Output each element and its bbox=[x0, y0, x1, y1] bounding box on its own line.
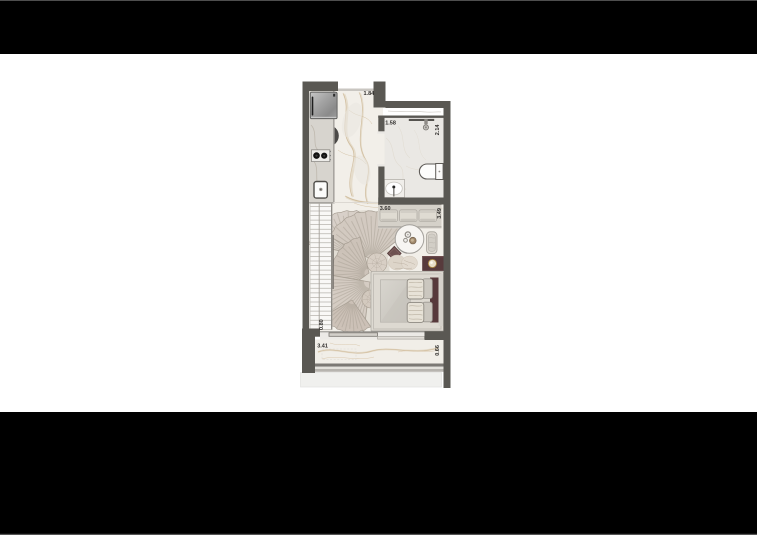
svg-text:0.66: 0.66 bbox=[435, 345, 441, 356]
svg-text:3.60: 3.60 bbox=[380, 206, 391, 212]
svg-text:3.49: 3.49 bbox=[437, 208, 443, 219]
svg-text:0.80: 0.80 bbox=[319, 319, 325, 330]
svg-text:1.58: 1.58 bbox=[385, 121, 396, 127]
svg-text:2.14: 2.14 bbox=[435, 124, 441, 136]
svg-text:1.84: 1.84 bbox=[364, 91, 376, 97]
svg-text:3.41: 3.41 bbox=[317, 343, 328, 349]
